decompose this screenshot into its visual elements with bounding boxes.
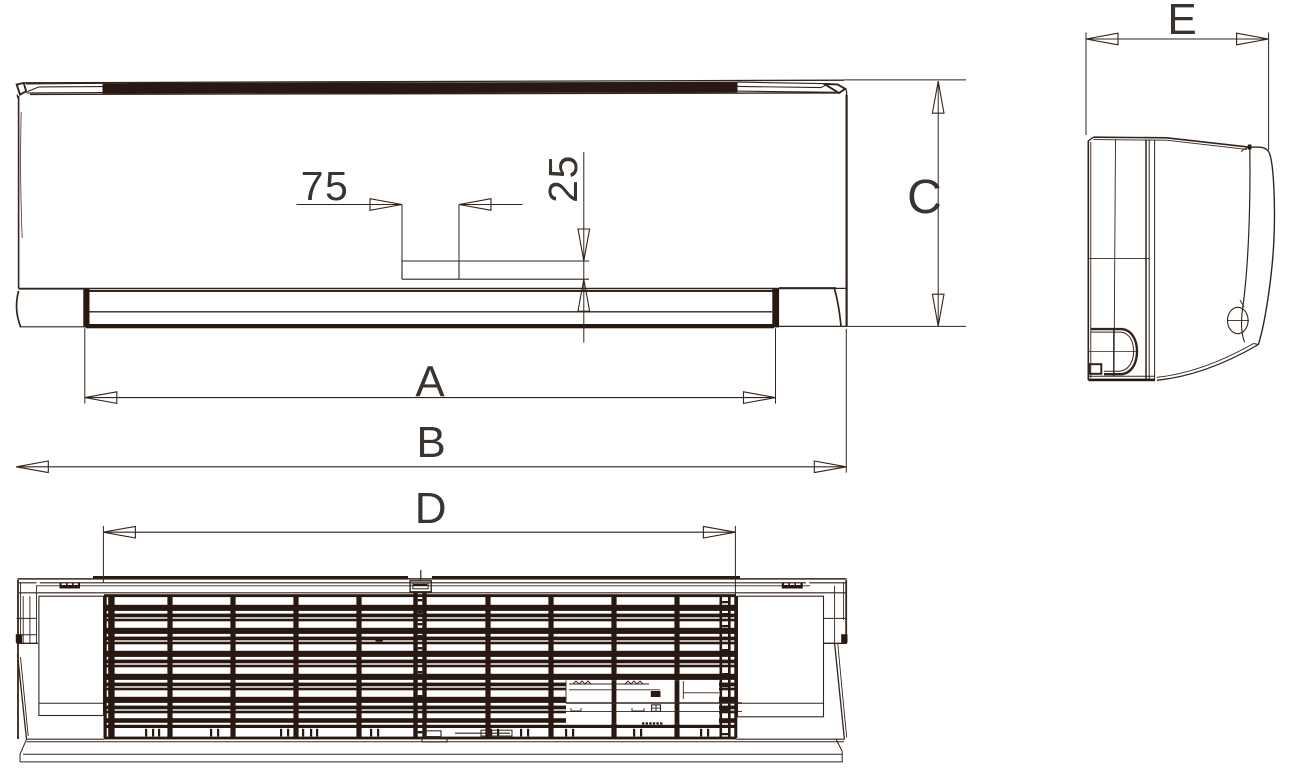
svg-text:C: C xyxy=(907,171,942,224)
svg-text:D: D xyxy=(415,484,447,533)
svg-text:B: B xyxy=(416,418,445,467)
svg-text:A: A xyxy=(415,358,445,407)
svg-text:E: E xyxy=(1167,0,1196,44)
svg-text:75: 75 xyxy=(301,163,350,209)
svg-text:25: 25 xyxy=(540,154,586,203)
